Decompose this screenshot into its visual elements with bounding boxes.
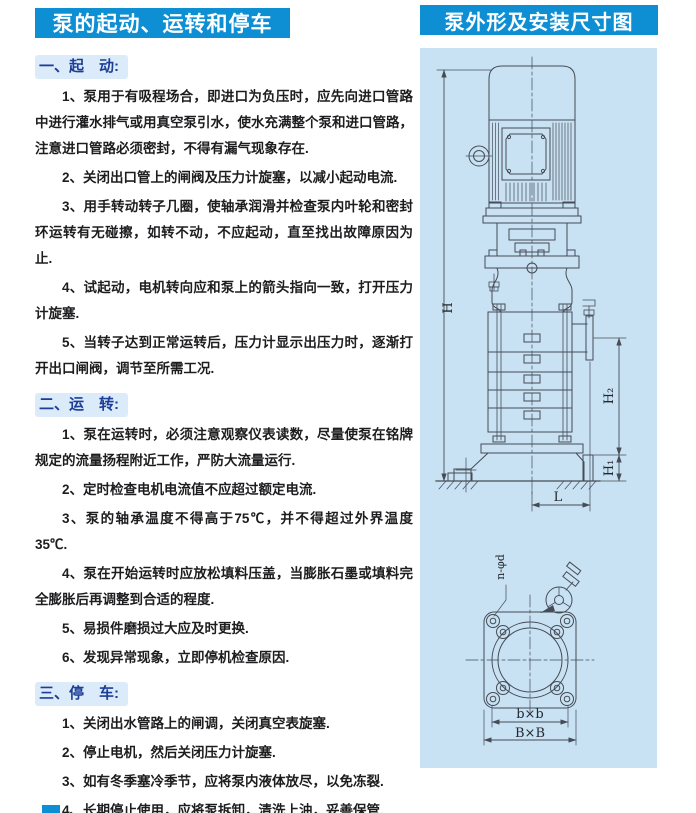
- drawing-panel: H H₂ H₁ L: [420, 48, 657, 768]
- dim-label-bxb: b×b: [516, 707, 544, 722]
- pump-base: [436, 444, 600, 492]
- section-starting-items: 1、泵用于有吸程场合，即进口为负压时，应先向进口管路中进行灌水排气或用真空泵引水…: [35, 84, 413, 382]
- section-running: 二、运 转:: [35, 393, 413, 417]
- list-item: 5、当转子达到正常运转后，压力计显示出压力时，逐渐打开出口闸阀，调节至所需工况.: [35, 330, 413, 382]
- gauge-tap-right: [583, 300, 595, 318]
- next-section-header-fragment: [42, 805, 60, 813]
- ground-hatching: [439, 481, 596, 489]
- dim-label-BxB: B×B: [515, 726, 545, 741]
- section-stopping-items: 1、关闭出水管路上的闸调，关闭真空表旋塞. 2、停止电机，然后关闭压力计旋塞. …: [35, 711, 413, 813]
- list-item: 2、定时检查电机电流值不应超过额定电流.: [35, 477, 413, 503]
- dim-label-H: H: [441, 302, 456, 313]
- list-item: 3、用手转动转子几圈，使轴承润滑并检查泵内叶轮和密封环运转有无碰擦，如转不动，不…: [35, 194, 413, 272]
- dim-label-L: L: [554, 490, 563, 505]
- list-item: 3、泵的轴承温度不得高于75℃，并不得超过外界温度35℃.: [35, 506, 413, 558]
- section-starting: 一、起 动:: [35, 55, 413, 79]
- elevation-dimensions: [437, 70, 626, 511]
- pump-plan-drawing: n-φd b×b B×B: [466, 554, 594, 745]
- section-heading-stopping: 三、停 车:: [35, 682, 128, 706]
- list-item: 1、泵在运转时，必须注意观察仪表读数，尽量使泵在铭牌规定的流量扬程附近工作，严防…: [35, 422, 413, 474]
- terminal-box: [502, 128, 550, 180]
- stage-stack: [488, 304, 572, 442]
- pump-dimension-drawing: H H₂ H₁ L: [420, 48, 657, 768]
- list-item: 1、泵用于有吸程场合，即进口为负压时，应先向进口管路中进行灌水排气或用真空泵引水…: [35, 84, 413, 162]
- list-item: 4、长期停止使用，应将泵拆卸，清洗上油，妥善保管.: [35, 798, 413, 813]
- left-title-text: 泵的起动、运转和停车: [53, 8, 273, 38]
- list-item: 1、关闭出水管路上的闸调，关闭真空表旋塞.: [35, 711, 413, 737]
- list-item: 2、关闭出口管上的闸阀及压力计旋塞，以减小起动电流.: [35, 165, 413, 191]
- dim-label-H2: H₂: [602, 388, 617, 405]
- left-column: 泵的起动、运转和停车 一、起 动: 1、泵用于有吸程场合，即进口为负压时，应先向…: [35, 8, 413, 813]
- dim-label-H1: H₁: [602, 460, 617, 477]
- section-running-items: 1、泵在运转时，必须注意观察仪表读数，尽量使泵在铭牌规定的流量扬程附近工作，严防…: [35, 422, 413, 671]
- pump-elevation-drawing: H H₂ H₁ L: [436, 57, 626, 511]
- left-title-bar: 泵的起动、运转和停车: [35, 8, 290, 38]
- bolt-spec-label: n-φd: [494, 554, 507, 580]
- section-stopping: 三、停 车:: [35, 682, 413, 706]
- list-item: 2、停止电机，然后关闭压力计旋塞.: [35, 740, 413, 766]
- list-item: 5、易损件磨损过大应及时更换.: [35, 616, 413, 642]
- list-item: 4、试起动，电机转向应和泵上的箭头指向一致，打开压力计旋塞.: [35, 275, 413, 327]
- list-item: 4、泵在开始运转时应放松填料压盖，当膨胀石墨或填料完全膨胀后再调整到合适的程度.: [35, 561, 413, 613]
- right-title-bar: 泵外形及安装尺寸图: [420, 5, 658, 35]
- discharge-flange: [572, 316, 593, 360]
- handwheel-valve: [546, 562, 581, 613]
- list-item: 6、发现异常现象，立即停机检查原因.: [35, 645, 413, 671]
- lifting-eye: [466, 146, 492, 166]
- right-title-text: 泵外形及安装尺寸图: [445, 6, 634, 35]
- section-heading-running: 二、运 转:: [35, 393, 128, 417]
- bolt-spec-leader: [494, 585, 506, 616]
- manual-page: 泵的起动、运转和停车 一、起 动: 1、泵用于有吸程场合，即进口为负压时，应先向…: [0, 0, 696, 813]
- section-heading-starting: 一、起 动:: [35, 55, 128, 79]
- list-item: 3、如有冬季塞冷季节，应将泵内液体放尽，以免冻裂.: [35, 769, 413, 795]
